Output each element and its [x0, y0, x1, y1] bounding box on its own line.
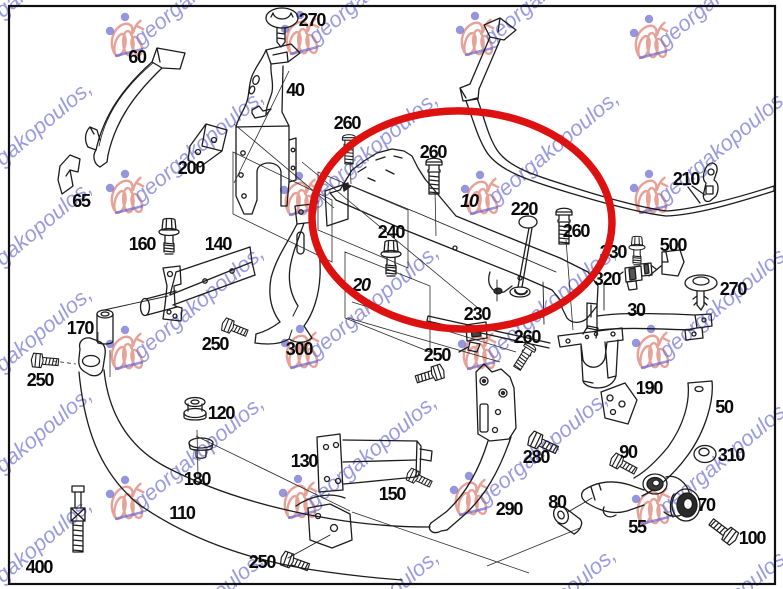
svg-text:55: 55 [628, 517, 647, 537]
svg-text:50: 50 [715, 397, 734, 417]
svg-text:140: 140 [205, 234, 233, 254]
svg-text:170: 170 [67, 318, 95, 338]
svg-text:300: 300 [286, 339, 314, 359]
svg-text:210: 210 [673, 169, 701, 189]
svg-text:250: 250 [424, 345, 452, 365]
svg-text:100: 100 [739, 528, 767, 548]
svg-text:180: 180 [184, 469, 212, 489]
svg-text:270: 270 [720, 279, 748, 299]
svg-text:260: 260 [420, 142, 448, 162]
svg-text:90: 90 [619, 442, 638, 462]
svg-text:250: 250 [27, 370, 55, 390]
svg-text:160: 160 [129, 234, 157, 254]
svg-text:70: 70 [697, 495, 716, 515]
svg-text:60: 60 [128, 47, 147, 67]
svg-text:400: 400 [26, 557, 54, 577]
svg-text:260: 260 [334, 113, 362, 133]
svg-text:270: 270 [299, 10, 327, 30]
svg-text:120: 120 [208, 403, 236, 423]
svg-text:190: 190 [636, 378, 664, 398]
svg-text:110: 110 [169, 503, 196, 523]
svg-text:240: 240 [378, 222, 406, 242]
svg-text:250: 250 [249, 552, 277, 572]
svg-text:130: 130 [291, 451, 319, 471]
svg-text:65: 65 [72, 191, 91, 211]
svg-text:280: 280 [523, 447, 551, 467]
svg-text:30: 30 [627, 300, 646, 320]
svg-text:200: 200 [178, 158, 206, 178]
svg-text:250: 250 [202, 334, 230, 354]
svg-text:220: 220 [511, 199, 539, 219]
svg-text:10: 10 [460, 191, 479, 211]
svg-text:290: 290 [496, 499, 524, 519]
svg-text:150: 150 [379, 484, 407, 504]
svg-text:260: 260 [563, 221, 591, 241]
svg-text:80: 80 [548, 492, 567, 512]
svg-text:40: 40 [286, 80, 305, 100]
svg-text:310: 310 [718, 445, 746, 465]
svg-text:230: 230 [464, 304, 492, 324]
svg-text:260: 260 [514, 327, 542, 347]
svg-text:500: 500 [660, 235, 688, 255]
